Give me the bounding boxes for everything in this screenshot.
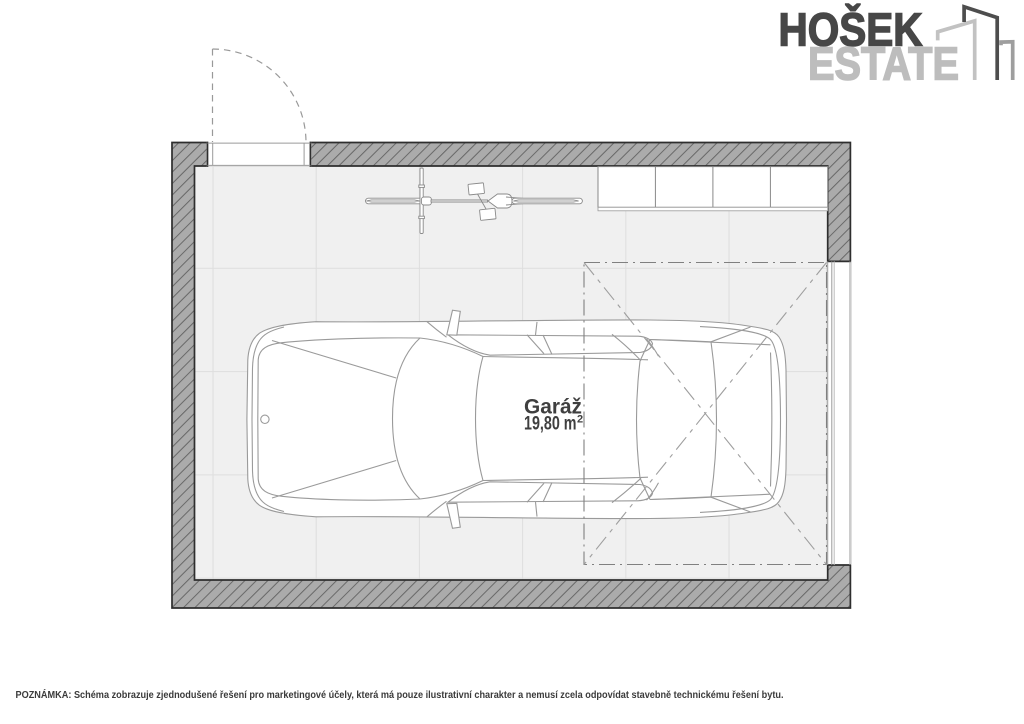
svg-text:19,80 m: 19,80 m [524,414,577,435]
svg-text:POZNÁMKA: Schéma zobrazuje zje: POZNÁMKA: Schéma zobrazuje zjednodušené … [16,688,784,701]
svg-text:2: 2 [577,413,583,425]
svg-text:ESTATE: ESTATE [808,38,959,90]
